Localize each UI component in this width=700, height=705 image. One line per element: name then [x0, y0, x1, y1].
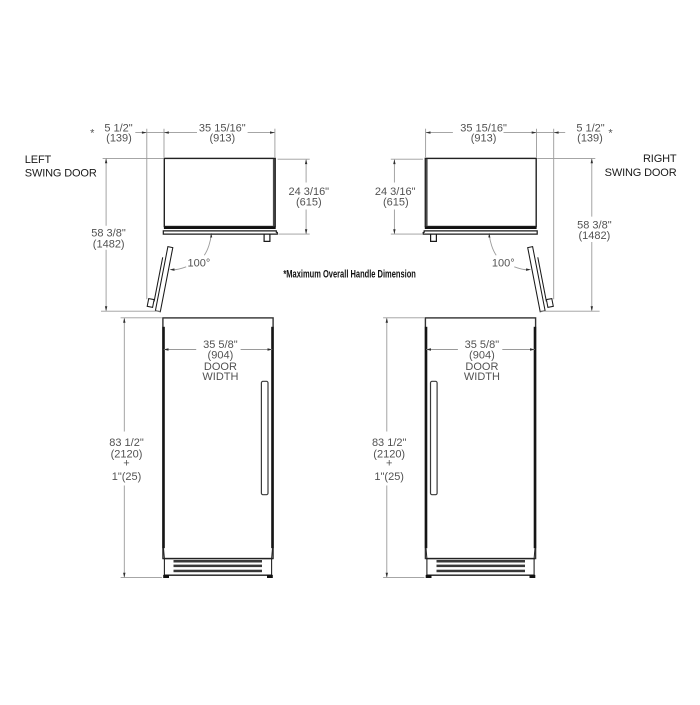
svg-text:(615): (615): [296, 197, 322, 209]
svg-text:(904): (904): [469, 349, 495, 361]
svg-text:(1482): (1482): [93, 239, 125, 251]
svg-text:+: +: [123, 458, 129, 470]
svg-text:LEFT: LEFT: [25, 154, 52, 166]
svg-text:*: *: [90, 127, 95, 139]
svg-text:RIGHT: RIGHT: [643, 153, 677, 165]
svg-text:WIDTH: WIDTH: [202, 371, 238, 383]
svg-text:58 3/8": 58 3/8": [91, 227, 126, 239]
svg-text:*: *: [608, 127, 613, 139]
svg-text:*Maximum Overall Handle Dimens: *Maximum Overall Handle Dimension: [283, 268, 416, 280]
svg-text:(913): (913): [471, 132, 497, 144]
svg-text:+: +: [386, 458, 392, 470]
svg-text:83 1/2": 83 1/2": [109, 437, 144, 449]
svg-text:83 1/2": 83 1/2": [372, 437, 407, 449]
svg-text:1"(25): 1"(25): [112, 471, 142, 483]
svg-text:(1482): (1482): [579, 230, 611, 242]
svg-text:1"(25): 1"(25): [374, 471, 404, 483]
svg-text:WIDTH: WIDTH: [464, 371, 500, 383]
svg-text:(913): (913): [209, 132, 235, 144]
svg-text:SWING DOOR: SWING DOOR: [605, 167, 677, 179]
svg-text:100°: 100°: [492, 257, 515, 269]
svg-text:(139): (139): [577, 132, 603, 144]
svg-text:(904): (904): [208, 349, 234, 361]
svg-text:100°: 100°: [188, 257, 211, 269]
svg-text:SWING DOOR: SWING DOOR: [25, 168, 97, 180]
svg-text:(615): (615): [383, 197, 409, 209]
svg-text:(139): (139): [106, 132, 132, 144]
